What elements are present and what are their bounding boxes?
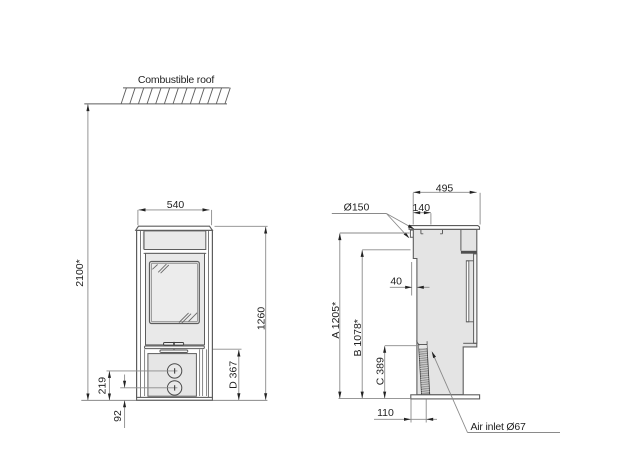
svg-text:92: 92 <box>112 410 124 422</box>
svg-text:1260: 1260 <box>255 307 267 331</box>
svg-text:219: 219 <box>96 377 108 395</box>
svg-text:Combustible roof: Combustible roof <box>138 74 214 86</box>
svg-text:C 389: C 389 <box>375 357 387 385</box>
svg-text:110: 110 <box>377 407 394 419</box>
svg-text:D 367: D 367 <box>228 361 240 389</box>
svg-text:540: 540 <box>167 199 185 211</box>
svg-text:Air inlet Ø67: Air inlet Ø67 <box>471 421 527 433</box>
svg-text:B 1078*: B 1078* <box>352 319 364 356</box>
svg-text:40: 40 <box>390 276 402 288</box>
svg-text:A 1205*: A 1205* <box>330 302 342 339</box>
svg-text:Ø150: Ø150 <box>344 201 370 213</box>
svg-text:2100*: 2100* <box>74 259 86 286</box>
